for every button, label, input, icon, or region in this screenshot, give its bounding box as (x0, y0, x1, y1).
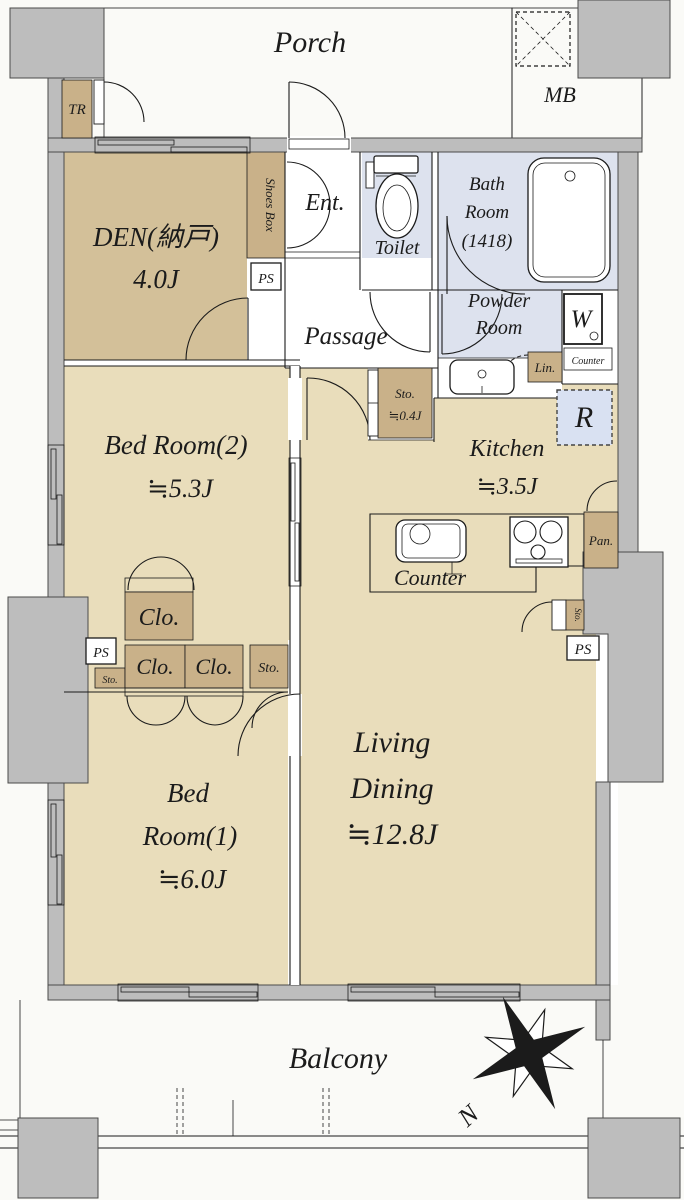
balcony-partition-1 (177, 1088, 183, 1136)
room-passage (285, 258, 438, 368)
label-porch: Porch (273, 26, 346, 59)
label-ps-left: PS (92, 646, 109, 661)
bottom-columns (18, 1118, 680, 1198)
label-sto04-2: ≒0.4J (389, 408, 423, 423)
label-washer: W (571, 306, 594, 333)
label-bath-3: (1418) (462, 231, 513, 252)
label-sto-right: Sto. (573, 608, 583, 622)
label-toilet: Toilet (375, 237, 420, 259)
label-balcony: Balcony (289, 1042, 388, 1075)
floor-plan-svg: Porch MB TR DEN(納戸) 4.0J Shoes Box Ent. … (0, 0, 684, 1200)
label-counter-shelf: Counter (572, 356, 605, 367)
storage-04 (368, 368, 432, 438)
label-closet-top: Clo. (139, 605, 180, 631)
label-powder-2: Room (475, 317, 523, 339)
label-kitchen-name: Kitchen (469, 436, 545, 462)
stove-icon (510, 517, 568, 567)
label-shoes-box: Shoes Box (263, 178, 278, 232)
label-closet-b: Clo. (195, 654, 232, 679)
label-den-size: 4.0J (133, 264, 181, 294)
wall-right-lower (596, 782, 610, 1040)
balcony-partition-2 (323, 1088, 329, 1136)
label-bath-1: Bath (469, 174, 505, 195)
label-bedroom2-size: ≒5.3J (147, 474, 214, 503)
label-bedroom1-1: Bed (167, 778, 209, 808)
floor-plan: Porch MB TR DEN(納戸) 4.0J Shoes Box Ent. … (0, 0, 684, 1200)
label-pantry: Pan. (588, 533, 613, 548)
label-bedroom1-size: ≒6.0J (158, 864, 228, 894)
wall-left (48, 152, 64, 985)
label-living-size: ≒12.8J (347, 818, 440, 851)
room-living-kitchen (300, 368, 618, 985)
label-tr: TR (68, 102, 86, 118)
label-mb: MB (543, 82, 576, 107)
label-den-name: DEN(納戸) (92, 222, 219, 252)
label-sto-mid: Sto. (258, 661, 279, 676)
column-bottom-left (18, 1118, 98, 1198)
column-mid-left (8, 597, 88, 783)
balcony-railing (0, 1136, 684, 1148)
label-kitchen-counter: Counter (394, 565, 467, 590)
label-bedroom1-2: Room(1) (142, 821, 237, 851)
wall-right-upper (618, 152, 638, 556)
column-bottom-right (588, 1118, 680, 1198)
label-living-1: Living (353, 726, 431, 759)
meter-box (516, 12, 570, 66)
washbasin-icon (450, 360, 514, 394)
label-powder-1: Powder (467, 290, 530, 312)
label-linen: Lin. (534, 360, 556, 375)
entrance-door (287, 82, 351, 154)
room-den (64, 152, 247, 360)
label-bedroom2-name: Bed Room(2) (104, 430, 247, 460)
label-sto-left: Sto. (102, 675, 117, 686)
label-ps-right: PS (574, 642, 592, 658)
porch-area (104, 8, 642, 138)
column-top-right (578, 0, 670, 78)
label-passage: Passage (303, 323, 387, 350)
bathtub-icon (528, 158, 610, 282)
label-sto04-1: Sto. (395, 386, 415, 401)
label-entrance: Ent. (304, 190, 344, 216)
bedroom-living-wall (288, 366, 302, 985)
label-ps-top: PS (257, 272, 274, 287)
label-kitchen-size: ≒3.5J (477, 474, 539, 500)
label-bath-2: Room (464, 202, 509, 223)
column-top-left (10, 8, 104, 78)
label-refrigerator: R (574, 401, 593, 434)
label-closet-a: Clo. (136, 654, 173, 679)
label-living-2: Dining (349, 772, 433, 805)
label-north: N (451, 1098, 485, 1133)
